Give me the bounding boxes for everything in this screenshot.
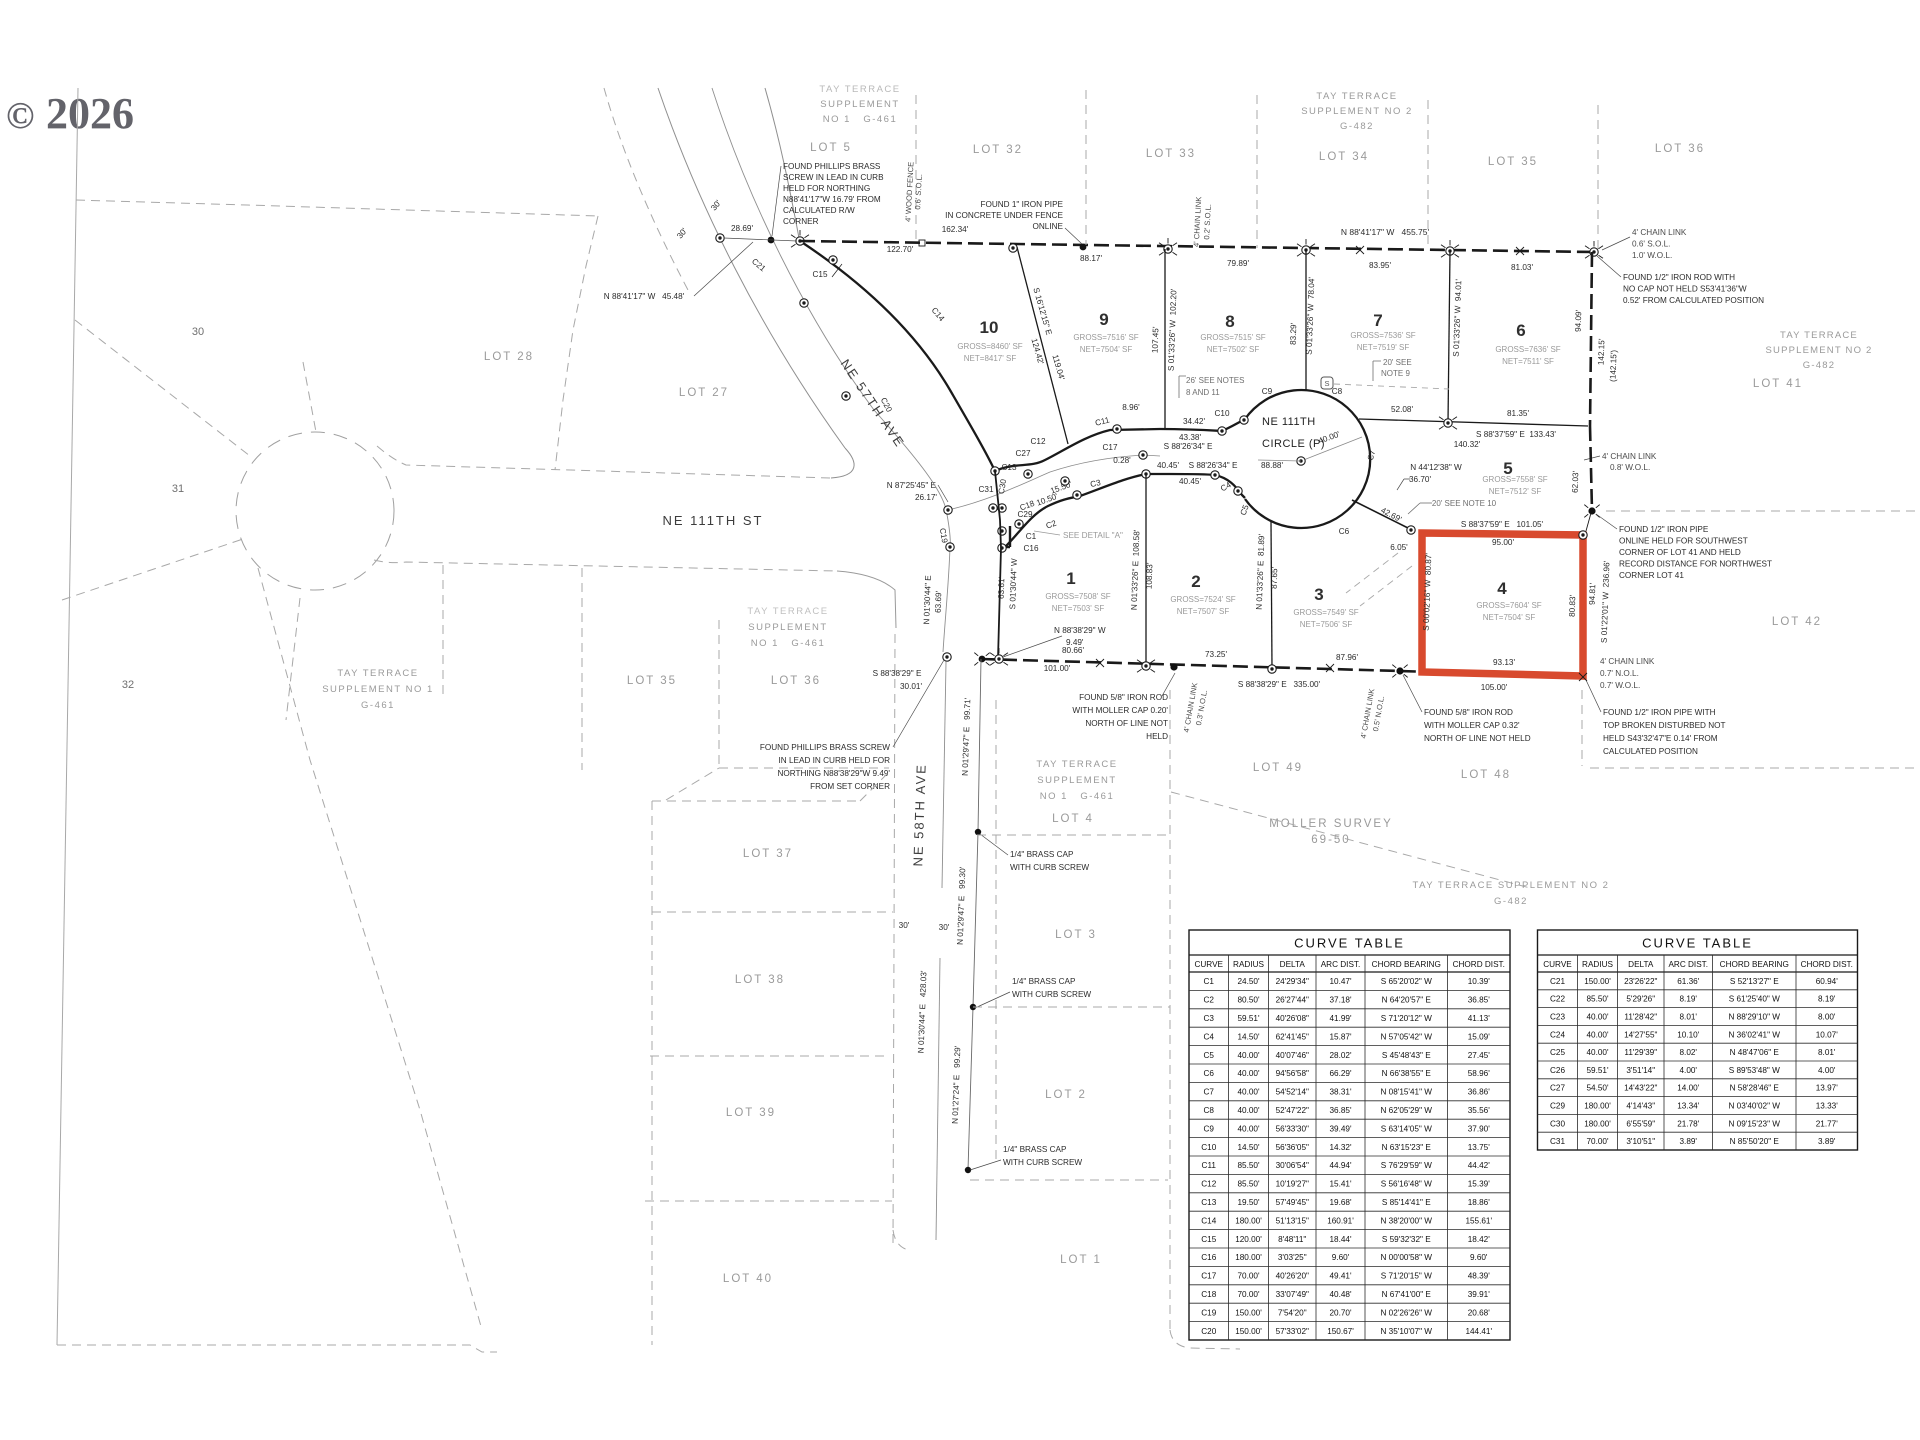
svg-text:6: 6 [1516,321,1525,340]
svg-text:144.41': 144.41' [1465,1327,1492,1336]
svg-text:C20: C20 [1201,1327,1216,1336]
svg-text:C15: C15 [812,270,827,279]
svg-text:8'48'11": 8'48'11" [1278,1235,1306,1244]
svg-text:LOT 36: LOT 36 [1655,143,1705,155]
svg-text:0.6' S.O.L.: 0.6' S.O.L. [1632,240,1670,249]
svg-text:88.17': 88.17' [1080,254,1102,263]
svg-text:2: 2 [1191,572,1200,591]
svg-text:0.8' W.O.L.: 0.8' W.O.L. [1610,463,1650,472]
svg-text:N 64'20'57" E: N 64'20'57" E [1382,996,1432,1005]
svg-text:GROSS=7516' SF: GROSS=7516' SF [1073,333,1138,342]
svg-text:NET=7511' SF: NET=7511' SF [1502,357,1554,366]
svg-text:38.31': 38.31' [1329,1088,1351,1097]
svg-text:37.18': 37.18' [1329,996,1351,1005]
svg-text:180.00': 180.00' [1584,1102,1611,1111]
svg-text:FOUND 1/2" IRON ROD WITH: FOUND 1/2" IRON ROD WITH [1623,273,1735,282]
svg-text:FOUND 1/2" IRON PIPE: FOUND 1/2" IRON PIPE [1619,525,1709,534]
svg-text:5'29'26": 5'29'26" [1626,995,1655,1004]
svg-text:31: 31 [172,483,184,495]
svg-text:40.00': 40.00' [1237,1106,1259,1115]
svg-text:G-482: G-482 [1340,121,1374,132]
svg-text:C17: C17 [1102,443,1117,452]
svg-text:S 71'20'12" W: S 71'20'12" W [1381,1014,1432,1023]
svg-text:FOUND 5/8" IRON ROD: FOUND 5/8" IRON ROD [1424,708,1513,717]
svg-text:S 88'38'29" E 335.00': S 88'38'29" E 335.00' [1238,680,1321,689]
svg-text:S 01'30'44" W: S 01'30'44" W [1008,558,1019,610]
svg-text:40'07'46": 40'07'46" [1276,1051,1309,1060]
svg-text:80.66': 80.66' [1062,646,1084,655]
svg-text:CORNER OF LOT 41 AND HELD: CORNER OF LOT 41 AND HELD [1619,548,1741,557]
svg-text:LOT 33: LOT 33 [1146,148,1196,160]
svg-text:59.51': 59.51' [1237,1014,1259,1023]
svg-text:GROSS=8460' SF: GROSS=8460' SF [957,342,1022,351]
svg-text:S 59'32'32" E: S 59'32'32" E [1382,1235,1431,1244]
svg-text:160.91': 160.91' [1327,1216,1354,1225]
svg-text:6'55'59": 6'55'59" [1626,1119,1655,1128]
svg-text:G-461: G-461 [361,700,395,711]
svg-text:18.44': 18.44' [1329,1235,1351,1244]
svg-text:94'56'58": 94'56'58" [1276,1069,1309,1078]
svg-text:4.00': 4.00' [1818,1066,1836,1075]
svg-text:GROSS=7558' SF: GROSS=7558' SF [1482,475,1547,484]
svg-text:26'27'44": 26'27'44" [1276,996,1309,1005]
svg-text:57'49'45": 57'49'45" [1276,1198,1309,1207]
svg-text:N88'41'17"W 16.79' FROM: N88'41'17"W 16.79' FROM [783,195,881,204]
svg-text:C16: C16 [1201,1253,1216,1262]
svg-text:NET=7502' SF: NET=7502' SF [1207,345,1260,354]
svg-text:0.28': 0.28' [1113,456,1131,465]
svg-text:8: 8 [1225,312,1234,331]
svg-text:NORTHING N88'38'29"W 9.49': NORTHING N88'38'29"W 9.49' [777,769,890,778]
svg-text:24.50': 24.50' [1237,977,1259,986]
svg-text:40.00': 40.00' [1237,1124,1259,1133]
svg-text:52'47'22": 52'47'22" [1276,1106,1309,1115]
svg-text:54'52'14": 54'52'14" [1276,1088,1309,1097]
svg-text:40'26'20": 40'26'20" [1276,1272,1309,1281]
svg-text:C6: C6 [1339,527,1350,536]
svg-text:C25: C25 [1550,1048,1565,1057]
svg-text:MOLLER SURVEY: MOLLER SURVEY [1269,818,1393,830]
svg-text:S 89'53'48" W: S 89'53'48" W [1729,1066,1780,1075]
svg-text:4' CHAIN LINK: 4' CHAIN LINK [1600,657,1655,666]
svg-text:140.32': 140.32' [1454,440,1481,449]
svg-text:(142.15'): (142.15') [1608,349,1618,382]
svg-text:S 61'25'40" W: S 61'25'40" W [1729,995,1780,1004]
svg-text:48.39': 48.39' [1468,1272,1490,1281]
svg-text:C16: C16 [1023,544,1038,553]
svg-text:FOUND PHILLIPS BRASS SCREW: FOUND PHILLIPS BRASS SCREW [760,743,890,752]
svg-text:9.60': 9.60' [1470,1253,1488,1262]
svg-text:CALCULATED POSITION: CALCULATED POSITION [1603,747,1698,756]
svg-text:80.50': 80.50' [1237,996,1259,1005]
svg-text:FOUND 1/2" IRON PIPE WITH: FOUND 1/2" IRON PIPE WITH [1603,708,1716,717]
svg-text:NET=7507' SF: NET=7507' SF [1177,607,1230,616]
svg-text:180.00': 180.00' [1235,1253,1262,1262]
svg-text:C15: C15 [1201,1235,1216,1244]
svg-text:RECORD DISTANCE FOR NORTHWEST: RECORD DISTANCE FOR NORTHWEST [1619,560,1772,569]
svg-text:FROM SET CORNER: FROM SET CORNER [810,782,890,791]
svg-text:30': 30' [899,921,910,930]
svg-text:GROSS=7636' SF: GROSS=7636' SF [1495,345,1560,354]
svg-text:CORNER: CORNER [783,217,819,226]
svg-text:SUPPLEMENT: SUPPLEMENT [748,622,827,633]
svg-text:C29: C29 [1550,1102,1565,1111]
svg-text:CURVE TABLE: CURVE TABLE [1642,936,1753,951]
svg-text:CHORD DIST.: CHORD DIST. [1801,960,1853,969]
svg-text:180.00': 180.00' [1584,1119,1611,1128]
svg-text:28.02': 28.02' [1329,1051,1351,1060]
svg-text:87.96': 87.96' [1336,653,1358,662]
svg-text:WITH CURB SCREW: WITH CURB SCREW [1003,1158,1082,1167]
svg-text:C26: C26 [1550,1066,1565,1075]
svg-text:3'10'51": 3'10'51" [1626,1137,1655,1146]
svg-text:40.48': 40.48' [1329,1290,1351,1299]
svg-text:33'07'49": 33'07'49" [1276,1290,1309,1299]
svg-text:CURVE: CURVE [1194,960,1223,969]
svg-text:79.89': 79.89' [1227,259,1249,268]
svg-text:4'14'43": 4'14'43" [1626,1102,1655,1111]
svg-text:C2: C2 [1204,996,1215,1005]
svg-text:43.38': 43.38' [1179,433,1201,442]
svg-text:C9: C9 [1262,387,1273,396]
svg-text:TOP BROKEN DISTURBED NOT: TOP BROKEN DISTURBED NOT [1603,721,1726,730]
svg-text:13.75': 13.75' [1468,1143,1490,1152]
svg-text:SEE DETAIL "A": SEE DETAIL "A" [1063,531,1123,540]
svg-text:N 08'15'41" W: N 08'15'41" W [1380,1088,1432,1097]
svg-text:155.61': 155.61' [1465,1216,1492,1225]
svg-text:SUPPLEMENT: SUPPLEMENT [820,99,899,110]
svg-text:N 88'38'29" W: N 88'38'29" W [1054,626,1106,635]
svg-text:LOT 49: LOT 49 [1253,762,1303,774]
svg-text:120.00': 120.00' [1235,1235,1262,1244]
svg-text:CIRCLE (P): CIRCLE (P) [1262,438,1325,450]
svg-text:3'51'14": 3'51'14" [1626,1066,1655,1075]
svg-text:44.94': 44.94' [1329,1161,1351,1170]
svg-text:NE 111TH: NE 111TH [1262,416,1316,428]
svg-text:C13: C13 [1001,463,1016,472]
svg-text:DELTA: DELTA [1280,960,1306,969]
svg-text:94.09': 94.09' [1574,309,1584,332]
svg-text:N 35'10'07" W: N 35'10'07" W [1380,1327,1432,1336]
svg-text:GROSS=7524' SF: GROSS=7524' SF [1170,595,1235,604]
svg-text:HELD FOR NORTHING: HELD FOR NORTHING [783,184,870,193]
svg-text:DELTA: DELTA [1628,960,1654,969]
svg-text:NO 1 G-461: NO 1 G-461 [1040,791,1115,802]
svg-text:CHORD BEARING: CHORD BEARING [1720,960,1789,969]
svg-text:S 88'37'59" E 101.05': S 88'37'59" E 101.05' [1461,520,1544,529]
svg-text:0.7' N.O.L.: 0.7' N.O.L. [1600,669,1639,678]
svg-text:63.61': 63.61' [997,576,1007,599]
svg-text:14'43'22": 14'43'22" [1624,1084,1657,1093]
svg-text:HELD: HELD [1146,732,1168,741]
svg-text:C14: C14 [1201,1216,1216,1225]
svg-text:122.70': 122.70' [887,245,914,254]
svg-text:NET=7512' SF: NET=7512' SF [1489,487,1542,496]
svg-text:LOT 35: LOT 35 [1488,156,1538,168]
svg-text:101.00': 101.00' [1044,664,1071,673]
svg-text:C29: C29 [1017,510,1032,519]
svg-text:GROSS=7515' SF: GROSS=7515' SF [1200,333,1265,342]
svg-text:7'54'20": 7'54'20" [1278,1308,1307,1317]
svg-text:60.94': 60.94' [1816,977,1838,986]
svg-text:11'29'39": 11'29'39" [1624,1048,1657,1057]
svg-text:34.42': 34.42' [1183,417,1205,426]
svg-text:8.96': 8.96' [1122,403,1140,412]
svg-text:C12: C12 [1201,1180,1216,1189]
svg-text:3: 3 [1314,585,1323,604]
svg-text:C8: C8 [1204,1106,1215,1115]
svg-text:S 65'20'02" W: S 65'20'02" W [1381,977,1432,986]
svg-text:8.19': 8.19' [1680,995,1698,1004]
svg-text:15.09': 15.09' [1468,1032,1490,1041]
svg-text:LOT 48: LOT 48 [1461,769,1511,781]
svg-text:32: 32 [122,679,134,691]
svg-text:LOT 3: LOT 3 [1055,929,1097,941]
svg-text:66.29': 66.29' [1329,1069,1351,1078]
svg-text:40.45': 40.45' [1157,461,1179,470]
svg-text:39.91': 39.91' [1468,1290,1490,1299]
svg-text:ARC DIST.: ARC DIST. [1668,960,1708,969]
svg-text:142.15': 142.15' [1597,338,1607,365]
svg-text:52.08': 52.08' [1391,405,1413,414]
svg-text:30.01': 30.01' [900,682,922,691]
svg-text:21.77': 21.77' [1816,1119,1838,1128]
svg-text:C5: C5 [1204,1051,1215,1060]
svg-text:WITH MOLLER CAP 0.32': WITH MOLLER CAP 0.32' [1424,721,1520,730]
svg-text:40.00': 40.00' [1586,1048,1608,1057]
svg-text:9: 9 [1099,310,1108,329]
svg-text:150.00': 150.00' [1235,1327,1262,1336]
svg-text:ONLINE: ONLINE [1033,222,1064,231]
svg-text:LOT 42: LOT 42 [1772,616,1822,628]
svg-text:30: 30 [192,326,204,338]
svg-text:CALCULATED R/W: CALCULATED R/W [783,206,855,215]
svg-text:GROSS=7604' SF: GROSS=7604' SF [1476,601,1541,610]
svg-text:N 03'40'02" W: N 03'40'02" W [1728,1102,1780,1111]
svg-text:20' SEE: 20' SEE [1383,358,1412,367]
svg-text:C27: C27 [1015,449,1030,458]
svg-text:93.13': 93.13' [1493,658,1515,667]
svg-text:20.68': 20.68' [1468,1308,1490,1317]
svg-text:10.47': 10.47' [1329,977,1351,986]
svg-text:CORNER LOT 41: CORNER LOT 41 [1619,571,1684,580]
svg-text:NO CAP NOT HELD S53'41'36"W: NO CAP NOT HELD S53'41'36"W [1623,285,1747,294]
svg-text:62.03': 62.03' [1571,470,1581,493]
svg-text:S 88'26'34" E: S 88'26'34" E [1164,442,1213,451]
svg-text:S 63'14'05" W: S 63'14'05" W [1381,1124,1432,1133]
svg-text:73.25': 73.25' [1205,650,1227,659]
svg-text:10.39': 10.39' [1468,977,1490,986]
svg-text:20.70': 20.70' [1329,1308,1351,1317]
svg-text:1/4" BRASS CAP: 1/4" BRASS CAP [1010,850,1074,859]
svg-text:36.85': 36.85' [1468,996,1490,1005]
svg-text:N 88'29'10" W: N 88'29'10" W [1728,1013,1780,1022]
svg-text:C21: C21 [1550,977,1565,986]
svg-text:41.13': 41.13' [1468,1014,1490,1023]
svg-text:81.03': 81.03' [1511,263,1533,272]
svg-text:49.41': 49.41' [1329,1272,1351,1281]
svg-text:N 67'41'00" E: N 67'41'00" E [1382,1290,1432,1299]
svg-text:0.6' S.O.L.: 0.6' S.O.L. [913,174,924,210]
svg-text:TAY TERRACE: TAY TERRACE [337,668,418,679]
svg-text:C24: C24 [1550,1030,1565,1039]
svg-text:N 85'50'20" E: N 85'50'20" E [1730,1137,1780,1146]
svg-text:ONLINE HELD FOR SOUTHWEST: ONLINE HELD FOR SOUTHWEST [1619,537,1748,546]
svg-text:18.42': 18.42' [1468,1235,1490,1244]
svg-text:20' SEE NOTE 10: 20' SEE NOTE 10 [1432,499,1497,508]
svg-text:26' SEE NOTES: 26' SEE NOTES [1186,376,1244,385]
svg-text:30'06'54": 30'06'54" [1276,1161,1309,1170]
svg-text:S 88'38'29" E: S 88'38'29" E [873,669,922,678]
svg-text:36.86': 36.86' [1468,1088,1490,1097]
svg-text:6.05': 6.05' [1390,543,1408,552]
svg-text:1/4" BRASS CAP: 1/4" BRASS CAP [1003,1145,1067,1154]
svg-text:C19: C19 [1201,1308,1216,1317]
svg-text:NET=7504' SF: NET=7504' SF [1080,345,1133,354]
svg-text:7: 7 [1373,311,1382,330]
svg-text:10.07': 10.07' [1816,1030,1838,1039]
svg-text:3.89': 3.89' [1818,1137,1836,1146]
svg-text:18.86': 18.86' [1468,1198,1490,1207]
svg-text:85.50': 85.50' [1586,995,1608,1004]
svg-text:10'19'27": 10'19'27" [1276,1180,1309,1189]
svg-text:80.83': 80.83' [1568,594,1578,617]
svg-text:14.50': 14.50' [1237,1143,1259,1152]
svg-text:95.00': 95.00' [1492,538,1514,547]
svg-text:N 38'20'00" W: N 38'20'00" W [1380,1216,1432,1225]
svg-text:GROSS=7549' SF: GROSS=7549' SF [1293,608,1358,617]
svg-text:TAY TERRACE: TAY TERRACE [1780,330,1858,341]
svg-text:LOT 4: LOT 4 [1052,813,1094,825]
svg-text:4' CHAIN LINK: 4' CHAIN LINK [1632,228,1687,237]
svg-text:LOT 28: LOT 28 [484,351,534,363]
svg-text:61.36': 61.36' [1677,977,1699,986]
svg-text:HELD S43'32'47"E 0.14' FROM: HELD S43'32'47"E 0.14' FROM [1603,734,1718,743]
svg-text:59.51': 59.51' [1586,1066,1608,1075]
svg-text:S 88'37'59" E 133.43': S 88'37'59" E 133.43' [1476,430,1556,439]
svg-text:N 88'41'17" W 455.75': N 88'41'17" W 455.75' [1341,227,1430,237]
svg-text:1.0' W.O.L.: 1.0' W.O.L. [1632,251,1672,260]
svg-text:27.45': 27.45' [1468,1051,1490,1060]
svg-text:NET=7506' SF: NET=7506' SF [1300,620,1353,629]
svg-text:TAY TERRACE: TAY TERRACE [819,84,900,95]
svg-text:S 85'14'41" E: S 85'14'41" E [1382,1198,1431,1207]
svg-text:63.69': 63.69' [934,590,944,613]
svg-text:35.56': 35.56' [1468,1106,1490,1115]
svg-text:©: © [6,95,34,137]
svg-text:NET=7504' SF: NET=7504' SF [1483,613,1536,622]
svg-text:C1: C1 [1204,977,1215,986]
svg-text:19.50': 19.50' [1237,1198,1259,1207]
svg-text:13.34': 13.34' [1677,1102,1699,1111]
svg-text:LOT 40: LOT 40 [723,1273,773,1285]
svg-text:SCREW IN LEAD IN CURB: SCREW IN LEAD IN CURB [783,173,884,182]
svg-text:C30: C30 [1550,1119,1565,1128]
svg-text:N 62'05'29" W: N 62'05'29" W [1380,1106,1432,1115]
svg-text:81.35': 81.35' [1507,409,1529,418]
svg-text:C8: C8 [1332,387,1343,396]
svg-text:N 57'05'42" W: N 57'05'42" W [1380,1032,1432,1041]
svg-text:8.00': 8.00' [1818,1013,1836,1022]
svg-text:N 63'15'23" E: N 63'15'23" E [1382,1143,1432,1152]
svg-text:N 44'12'38" W: N 44'12'38" W [1410,463,1462,472]
svg-text:85.50': 85.50' [1237,1161,1259,1170]
svg-text:C3: C3 [1204,1014,1215,1023]
svg-text:FOUND 1" IRON PIPE: FOUND 1" IRON PIPE [980,200,1063,209]
svg-text:39.49': 39.49' [1329,1124,1351,1133]
svg-text:23'26'22": 23'26'22" [1624,977,1657,986]
svg-text:CHORD BEARING: CHORD BEARING [1372,960,1441,969]
svg-text:56'33'30": 56'33'30" [1276,1124,1309,1133]
svg-text:8.02': 8.02' [1680,1048,1698,1057]
svg-text:S 76'29'59" W: S 76'29'59" W [1381,1161,1432,1170]
svg-text:13.97': 13.97' [1816,1084,1838,1093]
svg-text:1: 1 [1066,569,1075,588]
svg-text:LOT 37: LOT 37 [743,848,793,860]
svg-text:40.00': 40.00' [1586,1013,1608,1022]
svg-text:C12: C12 [1030,437,1045,446]
svg-text:CURVE: CURVE [1543,960,1572,969]
svg-text:24'29'34": 24'29'34" [1276,977,1309,986]
svg-text:CHORD DIST.: CHORD DIST. [1453,960,1505,969]
svg-text:LOT 1: LOT 1 [1060,1254,1102,1266]
svg-text:C13: C13 [1201,1198,1216,1207]
svg-text:3'03'25": 3'03'25" [1278,1253,1307,1262]
svg-text:26.17': 26.17' [915,493,937,502]
svg-text:LOT 32: LOT 32 [973,144,1023,156]
svg-text:N 48'47'06" E: N 48'47'06" E [1730,1048,1780,1057]
svg-text:14.50': 14.50' [1237,1032,1259,1041]
svg-text:NO 1 G-461: NO 1 G-461 [823,114,898,125]
svg-text:88.88': 88.88' [1261,461,1283,470]
svg-text:LOT 35: LOT 35 [627,675,677,687]
svg-text:107.45': 107.45' [1151,326,1161,353]
svg-text:RADIUS: RADIUS [1233,960,1264,969]
svg-text:LOT 41: LOT 41 [1753,378,1803,390]
svg-text:C9: C9 [1204,1124,1215,1133]
svg-text:TAY TERRACE SUPPLEMENT NO 2: TAY TERRACE SUPPLEMENT NO 2 [1413,880,1610,891]
svg-text:C31: C31 [1550,1137,1565,1146]
svg-text:0.52' FROM CALCULATED POSITION: 0.52' FROM CALCULATED POSITION [1623,296,1764,305]
svg-text:S 52'13'27" E: S 52'13'27" E [1730,977,1779,986]
svg-text:14'27'55": 14'27'55" [1624,1030,1657,1039]
svg-text:30': 30' [939,923,950,932]
svg-text:180.00': 180.00' [1235,1216,1262,1225]
svg-text:NO 1 G-461: NO 1 G-461 [751,638,826,649]
svg-text:11'28'42": 11'28'42" [1624,1013,1657,1022]
svg-text:69-50: 69-50 [1311,834,1350,846]
svg-text:70.00': 70.00' [1586,1137,1608,1146]
svg-text:TAY TERRACE: TAY TERRACE [1036,759,1117,770]
svg-text:9.60': 9.60' [1332,1253,1350,1262]
svg-text:36.70': 36.70' [1409,475,1431,484]
svg-text:S 88'26'34" E: S 88'26'34" E [1189,461,1238,470]
svg-text:8 AND 11: 8 AND 11 [1186,388,1220,397]
svg-text:TAY TERRACE: TAY TERRACE [747,606,828,617]
svg-text:94.81': 94.81' [1588,582,1598,605]
svg-text:WITH CURB SCREW: WITH CURB SCREW [1010,863,1089,872]
svg-text:0.7' W.O.L.: 0.7' W.O.L. [1600,681,1640,690]
svg-text:13.33': 13.33' [1816,1102,1838,1111]
svg-text:GROSS=7508' SF: GROSS=7508' SF [1045,592,1110,601]
svg-text:62'41'45": 62'41'45" [1276,1032,1309,1041]
svg-text:C11: C11 [1202,1161,1217,1170]
svg-text:108.83': 108.83' [1145,562,1155,589]
svg-text:58.96': 58.96' [1468,1069,1490,1078]
svg-text:N 87'25'45" E: N 87'25'45" E [887,481,937,490]
svg-text:C10: C10 [1214,409,1229,418]
svg-text:0.2' S.O.L.: 0.2' S.O.L. [1202,204,1213,240]
